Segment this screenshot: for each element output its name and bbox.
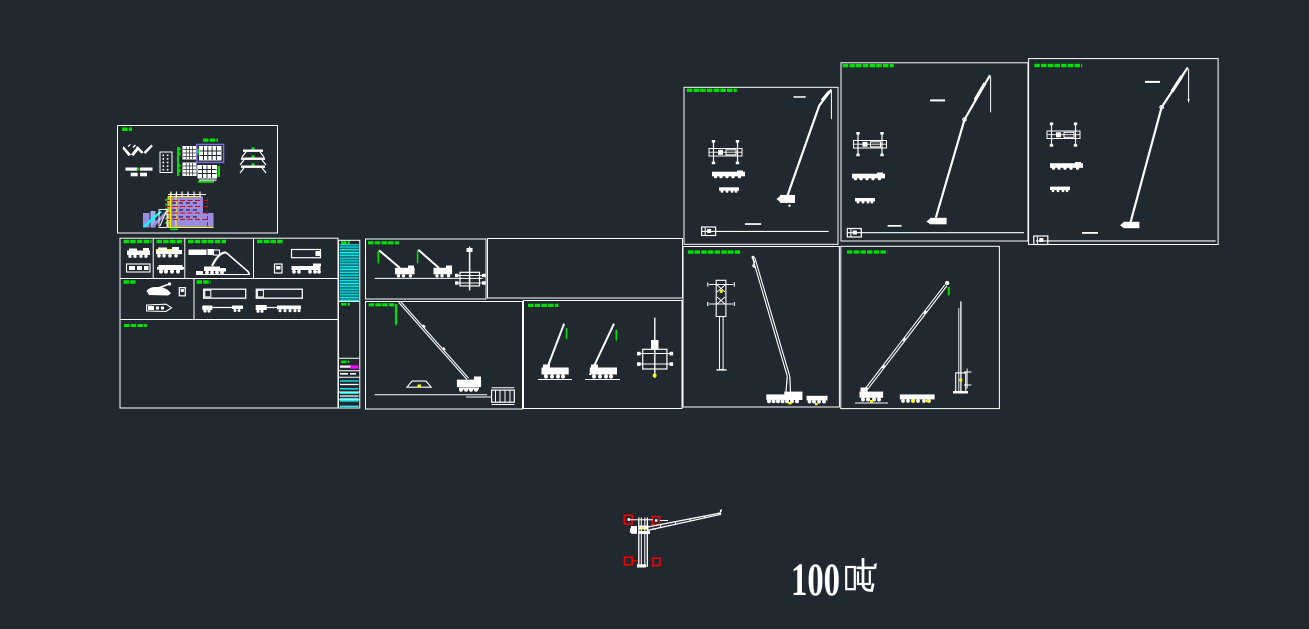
svg-text:100: 100 <box>791 555 840 606</box>
